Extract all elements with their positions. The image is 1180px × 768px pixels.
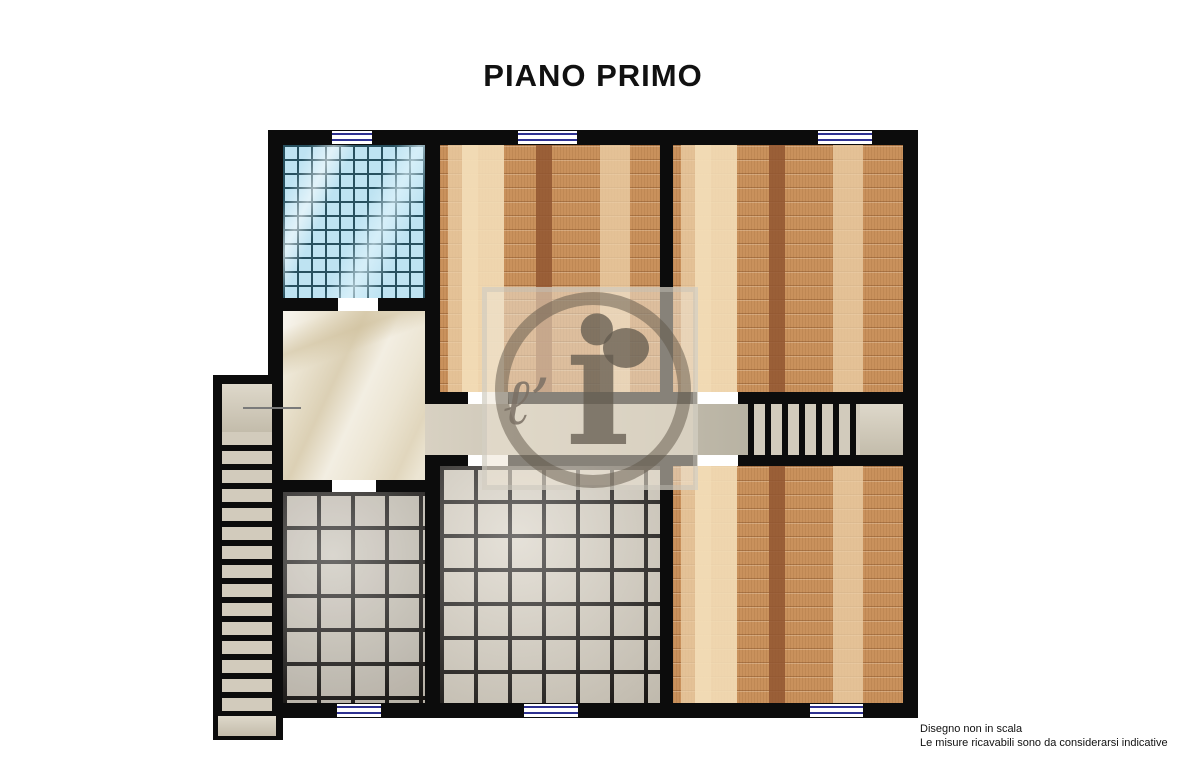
door-bottom-right-room — [697, 455, 738, 466]
door-bathroom — [338, 298, 378, 311]
watermark-script-l: ℓ’ — [503, 366, 550, 440]
window-bottom-left — [337, 704, 381, 717]
window-top-right — [818, 131, 872, 144]
door-bottom-left-room — [332, 480, 376, 492]
wall-outer-right — [903, 130, 918, 718]
window-bottom-center — [524, 704, 578, 717]
disclaimer: Disegno non in scala Le misure ricavabil… — [920, 722, 1168, 750]
room-bottom-center-floor — [440, 466, 660, 703]
internal-stairs-landing — [860, 404, 903, 455]
wall-center-right-lower — [660, 466, 673, 703]
door-swing-line — [243, 407, 301, 409]
room-bottom-right-floor — [673, 466, 903, 703]
watermark-letter-i: i — [565, 298, 630, 470]
door-top-right-room — [697, 392, 738, 404]
floor-plan-page: PIANO PRIMO — [0, 0, 1180, 768]
internal-stairs-treads — [748, 404, 860, 455]
external-stairs-treads — [222, 432, 272, 714]
room-bathroom-floor — [283, 145, 425, 298]
room-bottom-left-floor — [283, 492, 425, 703]
window-top-center — [518, 131, 577, 144]
window-bottom-right — [810, 704, 863, 717]
watermark-logo: i ℓ’ — [482, 287, 698, 490]
external-staircase — [213, 375, 283, 740]
window-top-bathroom — [332, 131, 372, 144]
disclaimer-line-1: Disegno non in scala — [920, 722, 1168, 736]
disclaimer-line-2: Le misure ricavabili sono da considerars… — [920, 736, 1168, 750]
wall-left-column-lower — [425, 455, 440, 703]
external-stairs-bottom-landing — [218, 716, 276, 736]
wall-left-column-upper — [425, 145, 440, 404]
page-title: PIANO PRIMO — [268, 58, 918, 94]
letter-i-dot-icon — [603, 328, 649, 368]
hallway-floor — [283, 311, 425, 480]
room-top-right-floor — [673, 145, 903, 392]
